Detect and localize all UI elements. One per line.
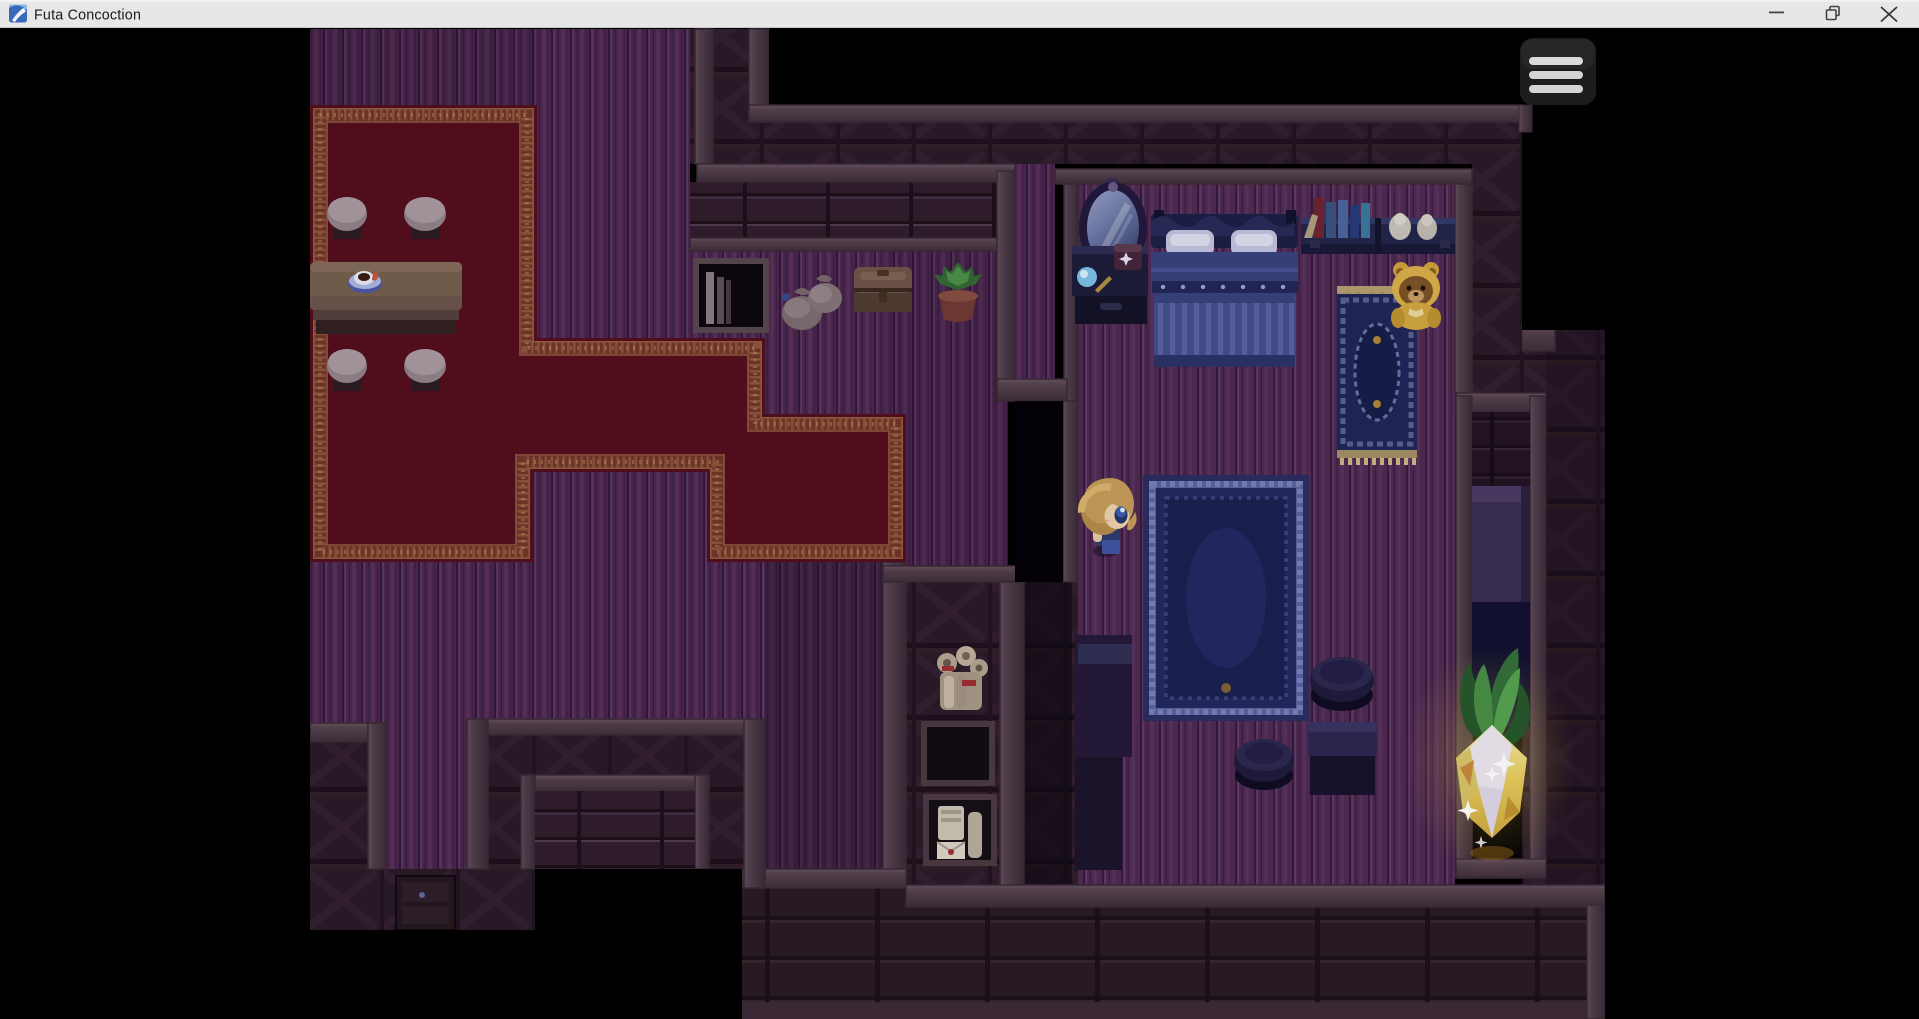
svg-text:Futa Concoction: Futa Concoction (34, 8, 141, 24)
